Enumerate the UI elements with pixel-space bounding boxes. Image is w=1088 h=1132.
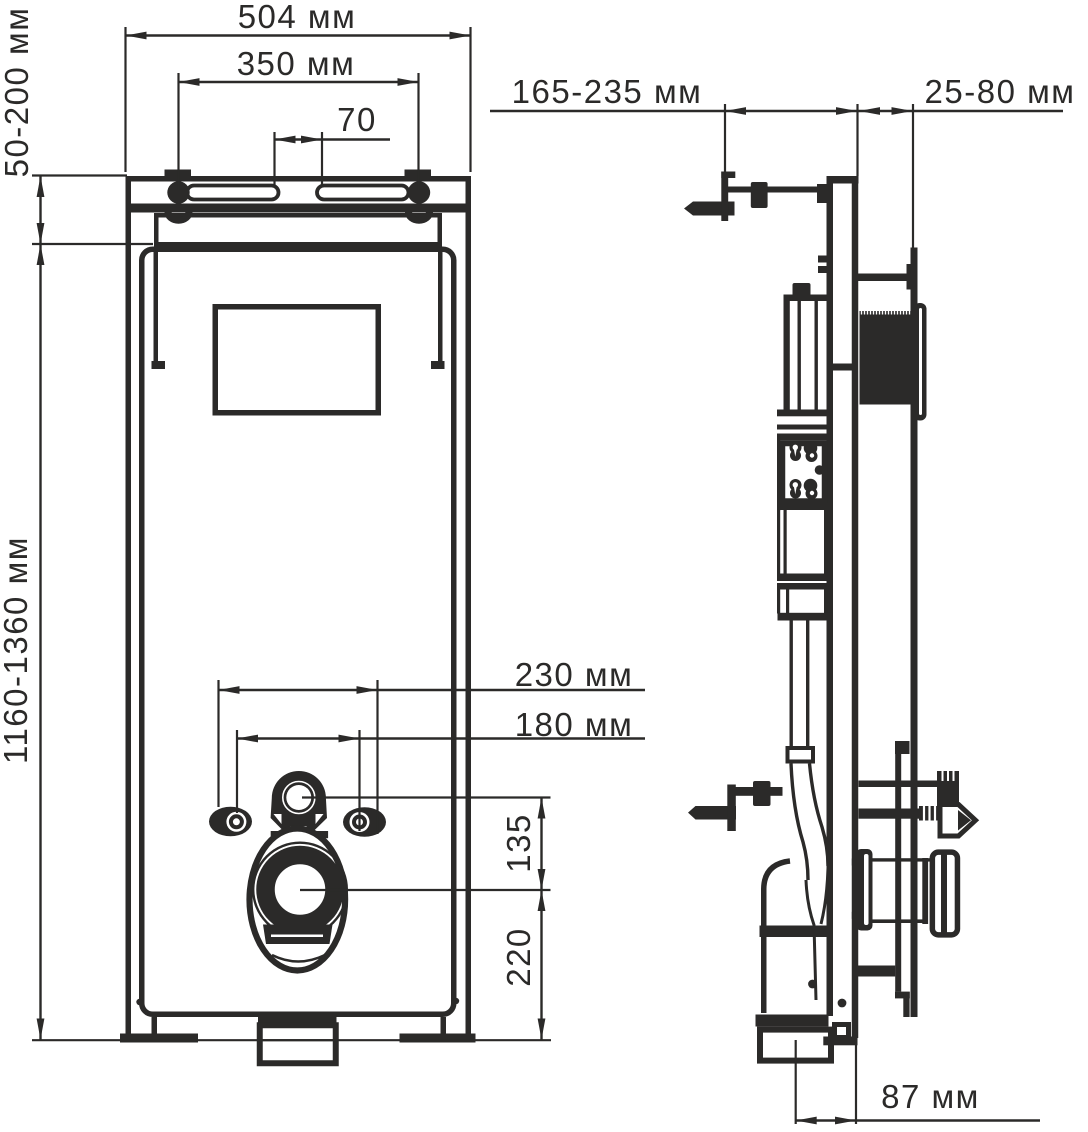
svg-text:50-200 мм: 50-200 мм xyxy=(0,7,35,178)
svg-text:165-235 мм: 165-235 мм xyxy=(512,73,703,110)
svg-text:25-80 мм: 25-80 мм xyxy=(925,73,1076,110)
svg-text:220: 220 xyxy=(500,927,537,987)
svg-text:87 мм: 87 мм xyxy=(881,1078,980,1115)
svg-text:70: 70 xyxy=(337,101,377,138)
svg-text:1160-1360 мм: 1160-1360 мм xyxy=(0,536,34,764)
svg-text:350 мм: 350 мм xyxy=(237,45,356,82)
svg-text:504 мм: 504 мм xyxy=(238,0,357,35)
svg-text:230 мм: 230 мм xyxy=(515,656,634,693)
svg-text:135: 135 xyxy=(500,813,537,873)
svg-text:180 мм: 180 мм xyxy=(515,706,634,743)
